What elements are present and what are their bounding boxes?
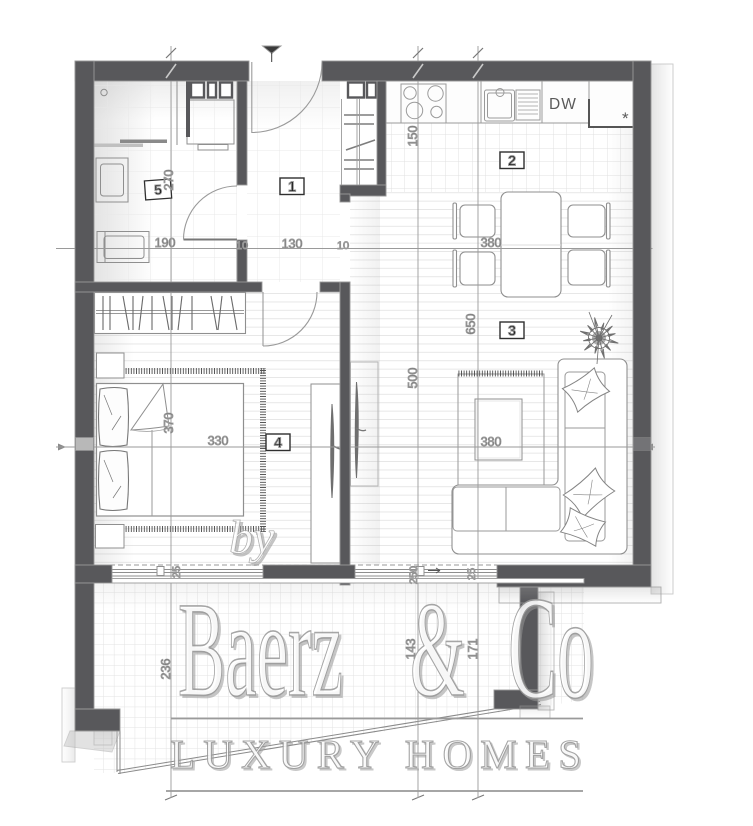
- svg-text:DW: DW: [549, 96, 577, 113]
- svg-text:3: 3: [508, 324, 516, 340]
- svg-text:190: 190: [155, 236, 176, 250]
- svg-text:370: 370: [162, 413, 176, 434]
- svg-text:Baerz: Baerz: [178, 575, 343, 726]
- svg-text:380: 380: [481, 236, 502, 250]
- svg-text:LUXURY HOMES: LUXURY HOMES: [170, 731, 581, 777]
- svg-text:10: 10: [337, 240, 349, 252]
- svg-text:*: *: [622, 109, 629, 128]
- svg-text:130: 130: [282, 237, 303, 251]
- svg-text:by: by: [229, 511, 275, 564]
- svg-text:650: 650: [464, 314, 478, 335]
- svg-text:236: 236: [159, 659, 173, 680]
- svg-text:500: 500: [406, 368, 420, 389]
- svg-text:&: &: [410, 575, 465, 726]
- svg-text:380: 380: [481, 435, 502, 449]
- svg-text:330: 330: [208, 434, 229, 448]
- svg-text:10: 10: [236, 240, 248, 252]
- svg-text:25: 25: [466, 568, 478, 580]
- svg-text:1: 1: [288, 180, 296, 196]
- svg-text:2: 2: [508, 154, 516, 170]
- svg-text:150: 150: [406, 126, 420, 147]
- svg-text:Co: Co: [508, 567, 594, 730]
- svg-text:171: 171: [466, 639, 480, 660]
- svg-text:270: 270: [162, 170, 176, 191]
- svg-text:4: 4: [274, 436, 282, 452]
